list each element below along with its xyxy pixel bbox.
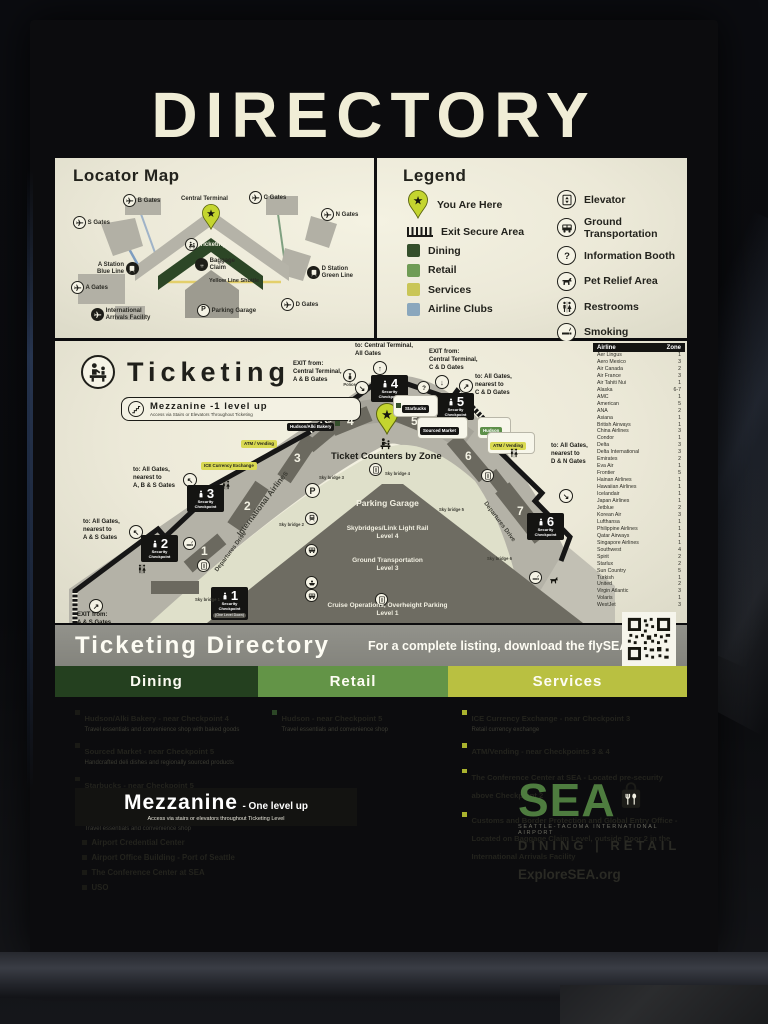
zone-7: 7	[517, 504, 524, 518]
airline-row: Alaska6-7	[593, 387, 685, 394]
retail-swatch	[407, 264, 420, 277]
airline-row: Virgin Atlantic3	[593, 588, 685, 595]
smoking-icon	[529, 571, 542, 584]
airline-row: Air Canada2	[593, 366, 685, 373]
airline-row: Emirates2	[593, 456, 685, 463]
legend-information-booth: Information Booth	[557, 246, 687, 265]
airline-row: Qatar Airways1	[593, 533, 685, 540]
airline-row: Singapore Airlines1	[593, 540, 685, 547]
bullet-icon	[75, 743, 80, 748]
person-icon	[151, 540, 159, 548]
dining-swatch	[407, 244, 420, 257]
mezzanine-item: USO	[82, 883, 362, 892]
restroom-icon	[137, 561, 147, 579]
airline-row: Volaris1	[593, 595, 685, 602]
to-ct-arrow: ↑	[373, 361, 387, 375]
plane-icon	[249, 191, 262, 204]
explore-sea-url: ExploreSEA.org	[518, 867, 688, 882]
bullet-icon	[75, 710, 80, 715]
airline-row: United2	[593, 581, 685, 588]
to-cd-label: to: All Gates, nearest to C & D Gates	[475, 374, 512, 397]
locator-b-gates: B Gates	[123, 194, 160, 207]
bullet-icon	[462, 769, 467, 774]
exit-cd-arrow: ↓	[435, 375, 449, 389]
zone-3: 3	[294, 451, 301, 465]
police-marker: Police	[343, 369, 356, 387]
exit-cd-label: EXIT from: Central Terminal, C & D Gates	[429, 349, 478, 372]
locator-d-gates: D Gates	[281, 298, 318, 311]
locator-central-terminal: Central Terminal	[181, 196, 228, 203]
retail-list: Hudson - near Checkpoint 5Travel essenti…	[272, 708, 434, 741]
legend-retail: Retail	[407, 264, 557, 277]
locator-map: B Gates S Gates Central Terminal C Gates…	[63, 186, 373, 334]
locator-c-gates: C Gates	[249, 191, 286, 204]
airline-row: Sun Country5	[593, 568, 685, 575]
airline-row: Air Tahiti Nui1	[593, 380, 685, 387]
plane-icon	[123, 194, 136, 207]
dining-item: Sourced Market - near Checkpoint 5Handcr…	[75, 741, 247, 767]
ticketing-map-panel: Ticketing Mezzanine -1 level up Access v…	[55, 341, 687, 623]
airline-row: Delta3	[593, 442, 685, 449]
airline-row: Hainan Airlines1	[593, 477, 685, 484]
mezzanine-item: The Conference Center at SEA	[82, 868, 362, 877]
person-icon	[221, 592, 229, 600]
ground-transportation-label: Ground TransportationLevel 3	[305, 557, 470, 573]
bus-icon	[305, 589, 318, 602]
directory-sign: DIRECTORY Locator Map	[30, 20, 718, 954]
mezzanine-item: Airport Office Building - Port of Seattl…	[82, 853, 362, 862]
tag-atm-vending-left: ATM / Vending	[241, 432, 277, 450]
checkpoint-6-badge: 6 Security Checkpoint	[527, 513, 564, 540]
pet-relief-icon	[549, 572, 559, 590]
bus-icon	[305, 544, 318, 557]
elevator-icon	[197, 559, 210, 572]
airline-row: Air France3	[593, 373, 685, 380]
to-abs-label: to: All Gates, nearest to A, B & S Gates	[133, 467, 175, 490]
parking-icon: P	[305, 483, 320, 498]
directory-title: Ticketing Directory	[75, 632, 330, 660]
to-as-label: to: All Gates, nearest to A & S Gates	[83, 519, 120, 542]
legend-left-column: You Are Here Exit Secure Area Dining Ret…	[407, 190, 557, 322]
tag-sourced-market: Sourced Market	[417, 417, 468, 439]
sky-bridge-4: Sky bridge 4	[385, 471, 410, 476]
locator-d-station: D Station Green Line	[307, 266, 353, 280]
airline-row: Asiana1	[593, 415, 685, 422]
restroom-icon	[557, 297, 576, 316]
tag-starbucks: Starbucks	[393, 395, 438, 417]
airline-row: ANA2	[593, 408, 685, 415]
tag-hudson-alki: Hudson/Alki Bakery	[287, 415, 340, 433]
locator-n-gates: N Gates	[321, 208, 358, 221]
retail-item: Hudson - near Checkpoint 5Travel essenti…	[272, 708, 434, 734]
airline-zone-table: Airline Zone Aer Lingus1 Aero Mexico3 Ai…	[593, 343, 685, 609]
locator-a-station: A Station Blue Line	[97, 262, 139, 276]
bullet-icon	[462, 710, 467, 715]
baggage-icon	[195, 258, 208, 271]
bullet-icon	[82, 870, 87, 875]
qr-code	[622, 612, 676, 666]
ticket-counters-label: Ticket Counters by Zone	[331, 451, 442, 462]
skybridges-label: Skybridges/Link Light RailLevel 4	[305, 525, 470, 541]
airline-row: Aer Lingus1	[593, 352, 685, 359]
smoking-icon	[183, 537, 196, 550]
zone-1: 1	[201, 544, 208, 558]
airport-name: SEATTLE-TACOMA INTERNATIONAL AIRPORT	[518, 824, 688, 836]
parking-garage-block: P Parking Garage Skybridges/Link Light R…	[305, 483, 470, 618]
checkpoint-1-badge: 1 Security Checkpoint (One Level Down)	[211, 587, 248, 620]
cruise-operations-label: Cruise Operations, Overheight ParkingLev…	[305, 602, 470, 618]
airline-clubs-swatch	[407, 303, 420, 316]
bullet-icon	[75, 777, 80, 782]
airline-row: Spirit2	[593, 554, 685, 561]
sky-bridge-1: Sky bridge 1	[195, 597, 220, 602]
airline-table-rows: Aer Lingus1 Aero Mexico3 Air Canada2 Air…	[593, 352, 685, 609]
dining-item: Hudson/Alki Bakery - near Checkpoint 4Tr…	[75, 708, 247, 734]
plane-icon	[73, 216, 86, 229]
arrivals-icon	[91, 308, 104, 321]
restroom-icon	[221, 477, 231, 495]
zone-6: 6	[465, 449, 472, 463]
exit-ab-arrow: ↘	[355, 381, 369, 395]
airline-row: Icelandair1	[593, 491, 685, 498]
bullet-icon	[462, 743, 467, 748]
airline-row: Eva Air1	[593, 463, 685, 470]
exit-as-arrow: ↗	[89, 599, 103, 613]
person-icon	[537, 518, 545, 526]
airline-row: Aero Mexico3	[593, 359, 685, 366]
dining-retail-tagline: DINING | RETAIL	[518, 838, 688, 853]
exit-secure-area-icon	[407, 227, 433, 237]
locator-map-title: Locator Map	[73, 166, 180, 186]
train-icon	[305, 512, 318, 525]
checkpoint-2-badge: 2 Security Checkpoint	[141, 535, 178, 562]
plane-icon	[321, 208, 334, 221]
legend-you-are-here: You Are Here	[407, 190, 557, 219]
sea-branding: SEA SEATTLE-TACOMA INTERNATIONAL AIRPORT…	[518, 778, 688, 882]
dining-chip	[396, 403, 401, 408]
restroom-icon	[509, 445, 519, 463]
frame-light-reflection	[27, 170, 33, 790]
to-cd-arrow: ↗	[459, 379, 473, 393]
info-booth-icon	[417, 381, 430, 394]
bullet-icon	[462, 812, 467, 817]
legend-services: Services	[407, 283, 557, 296]
person-icon	[447, 398, 455, 406]
airline-row: Philippine Airlines1	[593, 526, 685, 533]
airline-row: WestJet3	[593, 602, 685, 609]
elevator-icon	[369, 463, 382, 476]
airline-row: British Airways1	[593, 422, 685, 429]
airline-row: Southwest4	[593, 547, 685, 554]
plane-icon	[281, 298, 294, 311]
elevator-icon	[481, 469, 494, 482]
ticketing-directory-banner: Ticketing Directory For a complete listi…	[55, 625, 687, 666]
airline-row: American5	[593, 401, 685, 408]
airline-row: Hawaiian Airlines1	[593, 484, 685, 491]
map-title: Ticketing	[127, 357, 290, 388]
exit-ab-label: EXIT from: Central Terminal, A & B Gates	[293, 361, 342, 384]
ship-icon	[305, 576, 318, 589]
services-item: ATM/Vending - near Checkpoints 3 & 4	[462, 741, 678, 760]
legend-restrooms: Restrooms	[557, 297, 687, 316]
airline-row: Starlux2	[593, 561, 685, 568]
stairs-icon	[128, 401, 144, 417]
locator-yellow-line: Yellow Line Shuttle	[209, 278, 259, 284]
flysea-app-note: For a complete listing, download the fly…	[368, 639, 655, 653]
zone-4: 4	[347, 414, 354, 428]
person-icon	[381, 380, 389, 388]
dining-header: Dining	[55, 666, 258, 697]
sea-logo: SEA	[518, 778, 616, 822]
airline-row: Delta International3	[593, 449, 685, 456]
legend-elevator: Elevator	[557, 190, 687, 209]
mezzanine-item: Airport Credential Center	[82, 838, 362, 847]
top-panel: Locator Map B Gates S Gates	[55, 158, 687, 338]
sky-bridge-6: Sky bridge 6	[487, 556, 512, 561]
plane-icon	[71, 281, 84, 294]
to-dn-label: to: All Gates, nearest to D & N Gates	[551, 443, 588, 466]
bullet-icon	[82, 840, 87, 845]
bullet-icon	[82, 885, 87, 890]
parking-icon: P	[197, 304, 210, 317]
legend-exit-secure-area: Exit Secure Area	[407, 226, 557, 238]
bus-icon	[557, 218, 576, 237]
sign-title: DIRECTORY	[30, 78, 718, 152]
bullet-icon	[272, 710, 277, 715]
you-are-here-pin-icon	[407, 190, 429, 219]
you-are-here-pin	[201, 204, 221, 230]
train-icon	[307, 266, 320, 279]
legend-dining: Dining	[407, 244, 557, 257]
legend-ground-transportation: Ground Transportation	[557, 216, 687, 240]
police-icon	[343, 369, 356, 382]
airline-row: Turkish1	[593, 575, 685, 582]
ticketing-icon	[81, 355, 115, 389]
airline-row: Jetblue2	[593, 505, 685, 512]
sky-bridge-3: Sky bridge 3	[319, 475, 344, 480]
airline-row: Lufthansa1	[593, 519, 685, 526]
person-icon	[197, 490, 205, 498]
dog-icon	[557, 272, 576, 291]
legend-pet-relief: Pet Relief Area	[557, 272, 687, 291]
map-header: Ticketing	[81, 355, 290, 389]
shopping-bag-icon	[618, 780, 644, 810]
airline-table-header: Airline Zone	[593, 343, 685, 352]
tag-ice-currency: ICE Currency Exchange	[201, 454, 257, 472]
mezzanine-pill-title: Mezzanine -1 level up	[150, 401, 268, 412]
checkpoint-3-badge: 3 Security Checkpoint	[187, 485, 224, 512]
airline-row: Korean Air3	[593, 512, 685, 519]
legend-smoking: Smoking	[557, 323, 687, 342]
services-item: ICE Currency Exchange - near Checkpoint …	[462, 708, 678, 734]
retail-header: Retail	[258, 666, 448, 697]
locator-iaf: International Arrivals Facility	[91, 308, 150, 322]
airline-row: AMC1	[593, 394, 685, 401]
services-swatch	[407, 283, 420, 296]
smoking-icon	[557, 323, 576, 342]
question-icon	[557, 246, 576, 265]
mezzanine-banner: Mezzanine - One level up Access via stai…	[75, 788, 357, 826]
checkpoint-5-badge: 5 Security Checkpoint	[437, 393, 474, 420]
locator-baggage-claim: Baggage Claim	[195, 258, 235, 272]
locator-ticketing: Ticketing	[185, 238, 226, 251]
services-header: Services	[448, 666, 687, 697]
panel-divider	[374, 158, 377, 338]
sky-bridge-5: Sky bridge 5	[439, 507, 464, 512]
mezzanine-pill-sub: Access via Stairs or Elevators Throughou…	[150, 412, 268, 417]
airline-row: Japan Airlines1	[593, 498, 685, 505]
sky-bridge-2: Sky bridge 2	[279, 522, 304, 527]
mezzanine-list: Airport Credential Center Airport Office…	[82, 838, 362, 898]
dining-chip	[335, 421, 340, 426]
train-icon	[126, 262, 139, 275]
ticketing-icon	[185, 238, 198, 251]
airline-row: Frontier5	[593, 470, 685, 477]
locator-a-gates: A Gates	[71, 281, 108, 294]
to-dn-arrow: ↘	[559, 489, 573, 503]
zone-2: 2	[244, 499, 251, 513]
bullet-icon	[82, 855, 87, 860]
elevator-icon	[557, 190, 576, 209]
legend-airline-clubs: Airline Clubs	[407, 303, 557, 316]
airline-row: Condor1	[593, 435, 685, 442]
locator-parking: P Parking Garage	[197, 304, 256, 317]
legend-title: Legend	[403, 166, 466, 186]
floor	[560, 985, 768, 1024]
airline-row: China Airlines3	[593, 428, 685, 435]
to-ct-label: to: Central Terminal, All Gates	[355, 343, 413, 359]
locator-s-gates: S Gates	[73, 216, 110, 229]
